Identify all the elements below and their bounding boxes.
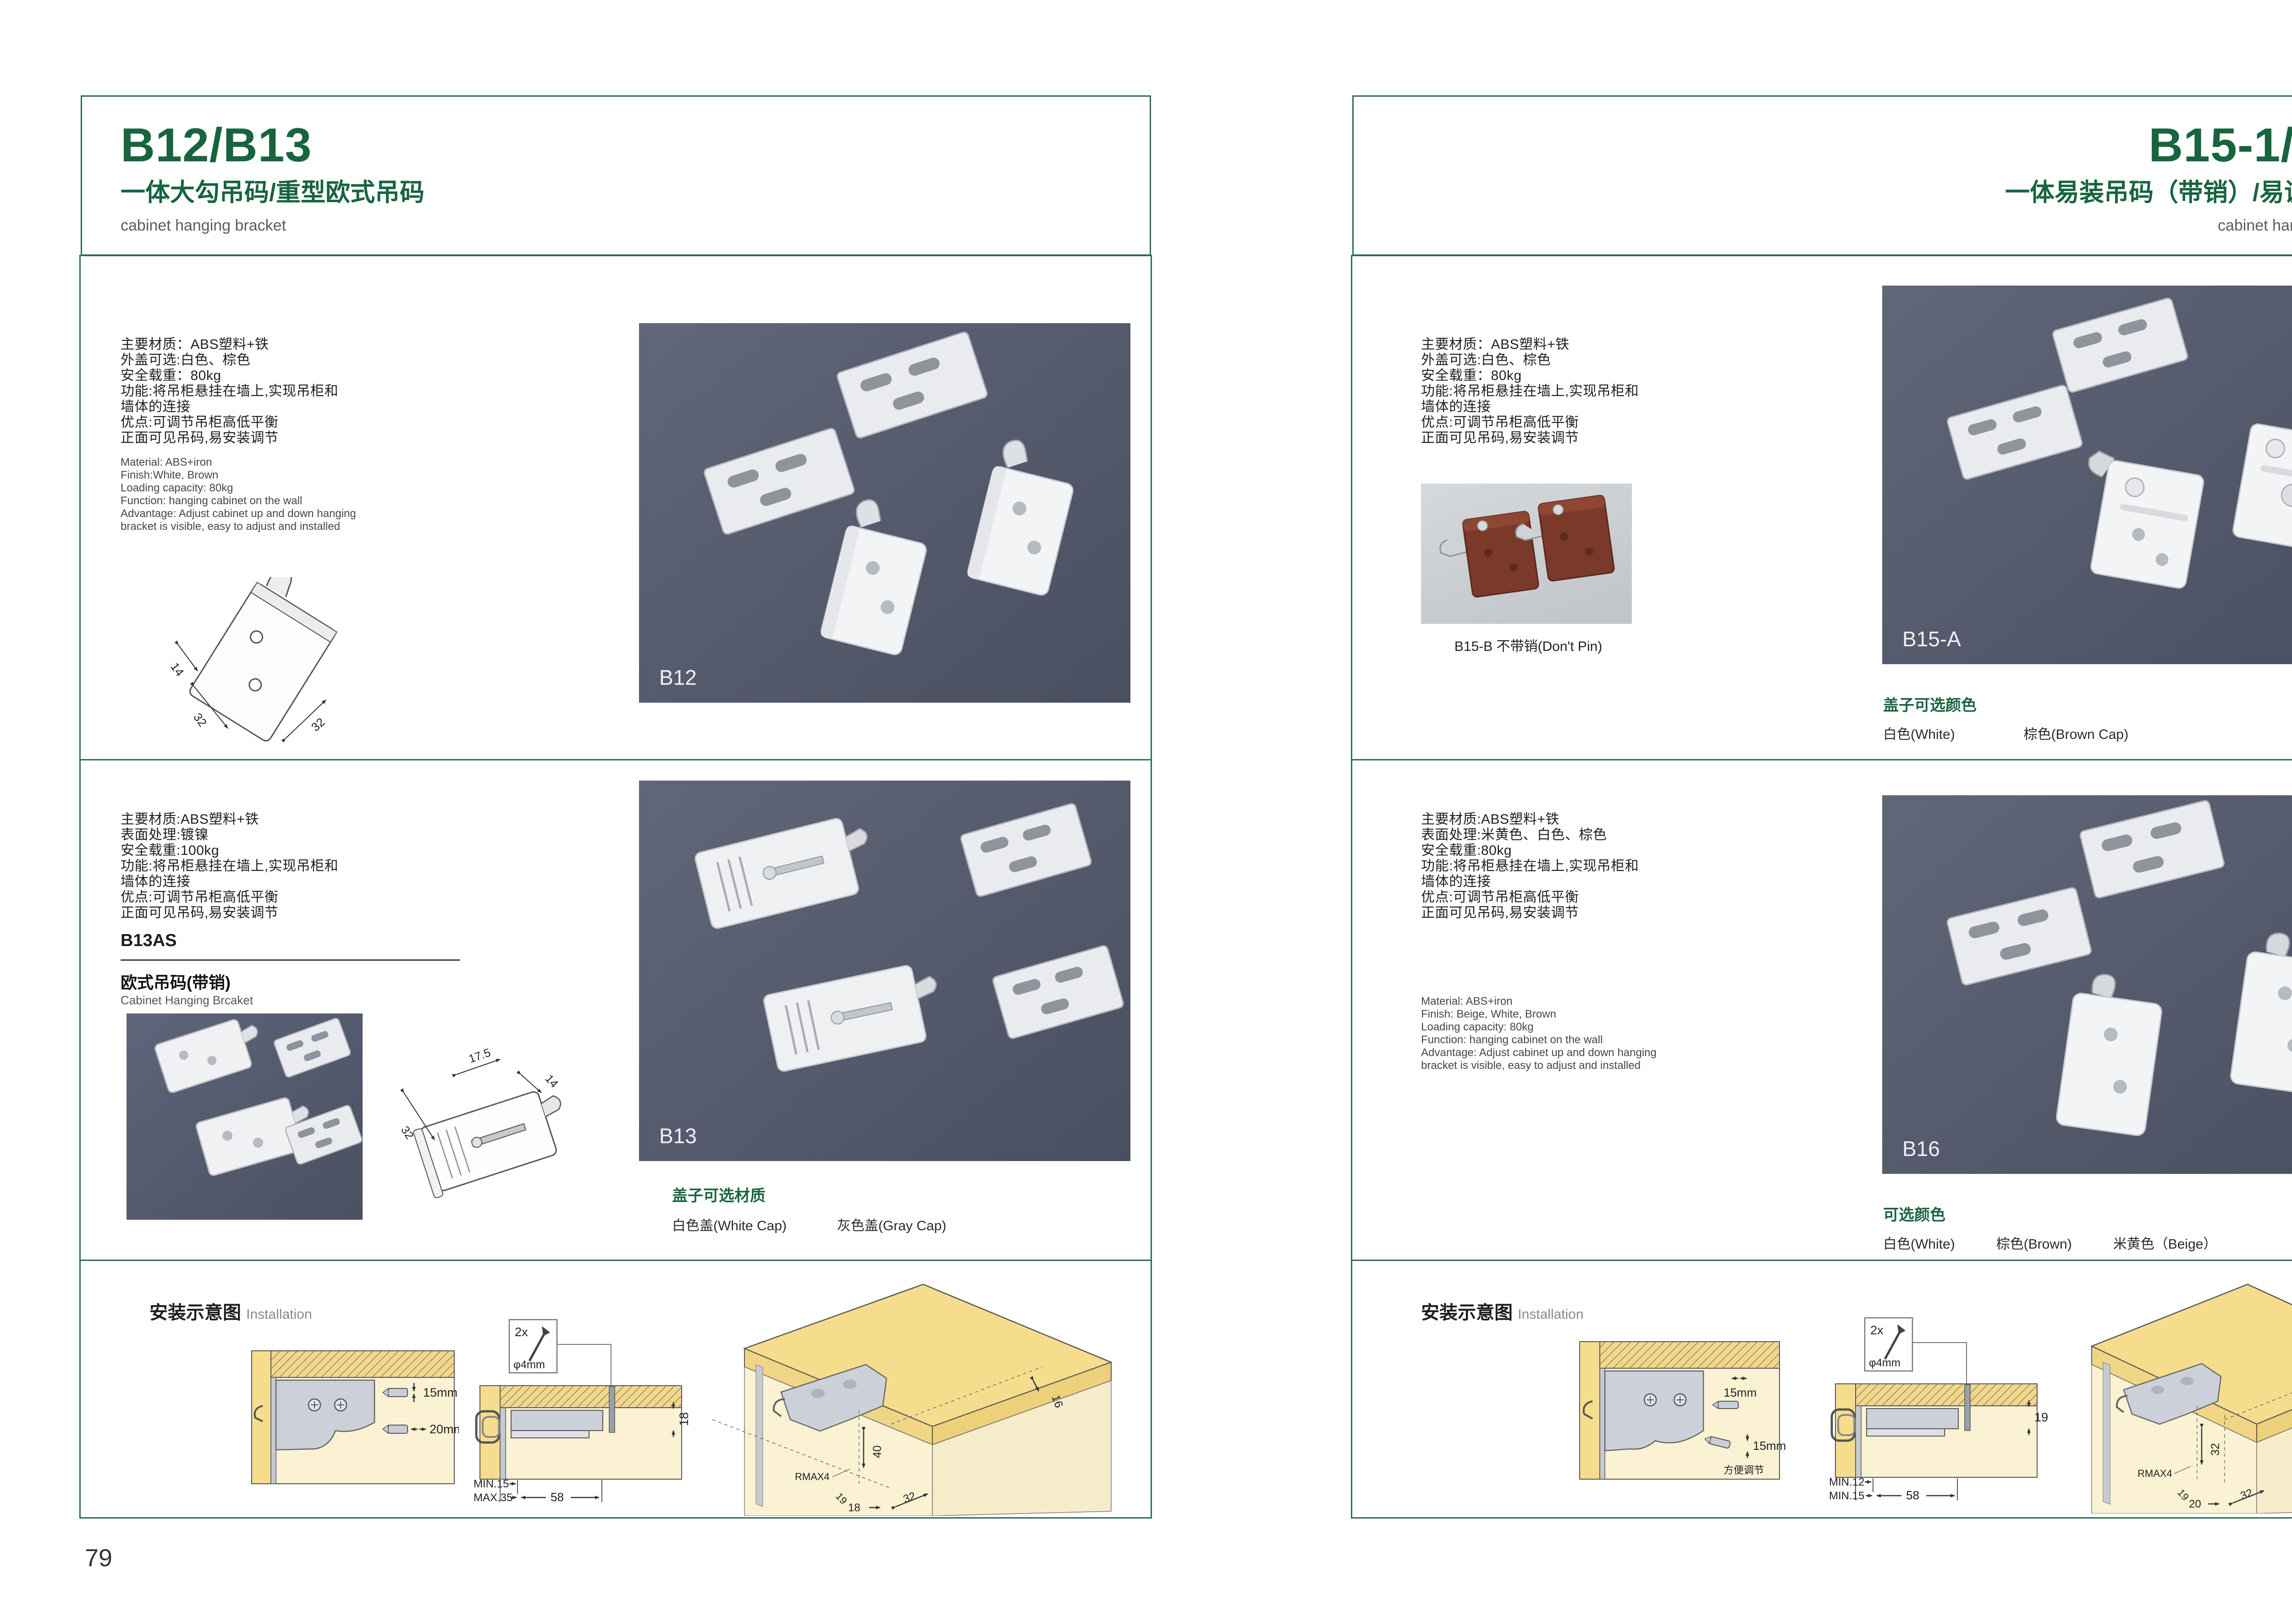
bracket-icon xyxy=(154,1014,268,1094)
section-divider xyxy=(81,759,1151,760)
svg-text:18: 18 xyxy=(677,1412,689,1426)
bracket-icon xyxy=(967,436,1082,596)
install-diagram-3d-left: 16 40 RMAX4 19 18 32 xyxy=(712,1268,1116,1516)
svg-text:φ4mm: φ4mm xyxy=(513,1359,545,1371)
svg-text:2x: 2x xyxy=(515,1325,528,1339)
hook-icon xyxy=(2265,931,2291,956)
bracket-icon xyxy=(2055,970,2165,1136)
cap-option: 灰色盖(Gray Cap) xyxy=(837,1214,946,1234)
cap-option: 白色(White) xyxy=(1883,1233,1955,1253)
b13-dimension-drawing: 32 17.5 14 xyxy=(383,1031,599,1228)
left-page-header: B12/B13 一体大勾吊码/重型欧式吊码 cabinet hanging br… xyxy=(81,95,1151,256)
wall-plate-icon xyxy=(273,1018,351,1078)
color-options-title: 可选颜色 xyxy=(1883,1202,1945,1225)
b13-specs-cn: 主要材质:ABS塑料+铁 表面处理:镀镍 安全载重:100kg 功能:将吊柜悬挂… xyxy=(121,812,338,921)
svg-text:MIN.12: MIN.12 xyxy=(1829,1476,1864,1488)
wall-plate-icon xyxy=(836,331,988,439)
b16-product-photo: B16 xyxy=(1882,795,2292,1174)
svg-text:2x: 2x xyxy=(1870,1323,1884,1337)
b12-specs-en: Material: ABS+iron Finish:White, Brown L… xyxy=(121,456,356,533)
install-diagram-screw-right: 2x φ4mm 19 MIN.12 MIN.15 58 xyxy=(1829,1315,2049,1508)
b15b-thumb-caption: B15-B 不带销(Don't Pin) xyxy=(1400,635,1657,655)
b12-photo-art xyxy=(639,323,1130,703)
bracket-icon xyxy=(694,812,880,930)
install-diagram-3d-right: 30 32 RMAX4 19 20 32 xyxy=(2064,1268,2292,1514)
section-divider xyxy=(1352,1260,2292,1261)
photo-label: B16 xyxy=(1902,1136,1940,1161)
color-options: 白色(White) 棕色(Brown) 米黄色（Beige） xyxy=(1883,1233,2217,1253)
bracket-icon xyxy=(820,496,935,656)
right-page-header: B15-1/B16 一体易装吊码（带销）/易调节吊码 cabinet hangi… xyxy=(1352,95,2292,256)
cap-color-title: 盖子可选颜色 xyxy=(1883,693,1977,715)
section-divider xyxy=(81,1260,1151,1261)
svg-text:RMAX4: RMAX4 xyxy=(2138,1468,2172,1479)
svg-text:14: 14 xyxy=(168,660,187,679)
svg-text:32: 32 xyxy=(2209,1443,2222,1456)
page-title: B12/B13 xyxy=(121,121,312,169)
hook-icon xyxy=(2091,973,2116,997)
svg-text:32: 32 xyxy=(309,715,328,734)
b12-dimension-drawing: 14 32 32 xyxy=(124,577,381,756)
wall-plate-icon xyxy=(2079,800,2225,899)
b16-specs-cn: 主要材质:ABS塑料+铁 表面处理:米黄色、白色、棕色 安全载重:80kg 功能… xyxy=(1421,812,1639,921)
b12-product-photo: B12 xyxy=(639,323,1130,703)
b15b-thumb-photo xyxy=(1421,484,1632,624)
page-tagline: cabinet hanging bracket xyxy=(2218,217,2292,235)
svg-text:20mm: 20mm xyxy=(430,1422,459,1436)
svg-text:MIN.15: MIN.15 xyxy=(474,1478,509,1490)
svg-text:20: 20 xyxy=(2189,1498,2201,1510)
install-diagram-section-left: 15mm 20mm xyxy=(243,1337,459,1488)
wall-plate-icon xyxy=(2052,297,2188,393)
page-title: B15-1/B16 xyxy=(2149,121,2292,169)
svg-text:18: 18 xyxy=(848,1502,860,1514)
hook-icon xyxy=(1439,538,1467,558)
bracket-icon xyxy=(2232,423,2292,553)
installation-title-en: Installation xyxy=(246,1307,312,1322)
page-number-left: 79 xyxy=(85,1544,112,1572)
install-diagram-screw-left: 2x φ4mm 18 MIN.15 MAX.35 58 xyxy=(474,1317,689,1509)
right-page-content: 主要材质：ABS塑料+铁 外盖可选:白色、棕色 安全载重：80kg 功能:将吊柜… xyxy=(1351,255,2292,1519)
screw-icon xyxy=(609,1387,615,1432)
wall-plate-icon xyxy=(1946,385,2083,480)
cap-option: 棕色(Brown Cap) xyxy=(2024,723,2128,743)
svg-text:φ4mm: φ4mm xyxy=(1869,1357,1901,1369)
svg-text:14: 14 xyxy=(543,1072,561,1090)
svg-text:15mm: 15mm xyxy=(1753,1439,1786,1453)
bracket-icon xyxy=(763,960,948,1072)
cap-option: 棕色(Brown) xyxy=(1996,1233,2072,1253)
b15-specs-cn: 主要材质：ABS塑料+铁 外盖可选:白色、棕色 安全载重：80kg 功能:将吊柜… xyxy=(1421,337,1639,446)
wall-plate-icon xyxy=(703,427,855,535)
section-divider xyxy=(1352,759,2292,760)
photo-label: B12 xyxy=(659,665,697,690)
svg-text:17.5: 17.5 xyxy=(467,1046,492,1065)
cap-color-options: 白色(White) 棕色(Brown Cap) xyxy=(1883,723,2128,743)
b13-product-photo: B13 xyxy=(639,781,1130,1161)
svg-text:MAX.35: MAX.35 xyxy=(474,1492,512,1504)
svg-text:32: 32 xyxy=(191,710,209,729)
catalog-spread: { "colors":{"accent":"#17643f","border":… xyxy=(0,0,2292,1624)
svg-text:58: 58 xyxy=(551,1490,564,1504)
page-subtitle: 一体易装吊码（带销）/易调节吊码 xyxy=(2005,179,2292,206)
model-name-en: Cabinet Hanging Brcaket xyxy=(121,993,253,1007)
cap-material-title: 盖子可选材质 xyxy=(672,1183,766,1206)
svg-text:58: 58 xyxy=(1906,1488,1919,1502)
screw-icon xyxy=(1965,1385,1970,1431)
photo-label: B15-A xyxy=(1902,627,1961,651)
wall-plate-icon xyxy=(992,945,1124,1039)
bracket-icon xyxy=(2230,929,2292,1095)
b13as-thumb-photo xyxy=(127,1013,363,1220)
installation-title: 安装示意图 Installation xyxy=(149,1298,312,1324)
cap-option: 白色(White) xyxy=(1883,723,1955,743)
wall-plate-icon xyxy=(960,803,1092,897)
install-diagram-section-right: 15mm 15mm 方便调节 xyxy=(1572,1324,1788,1496)
b13as-thumb-art xyxy=(127,1013,363,1220)
b13-photo-art xyxy=(639,781,1130,1161)
b16-specs-en: Material: ABS+iron Finish: Beige, White,… xyxy=(1421,995,1657,1072)
svg-text:15mm: 15mm xyxy=(423,1386,457,1399)
svg-text:RMAX4: RMAX4 xyxy=(795,1471,830,1482)
svg-text:19: 19 xyxy=(2034,1410,2048,1424)
b15a-photo-art xyxy=(1882,286,2292,664)
svg-text:15mm: 15mm xyxy=(1724,1386,1757,1399)
model-underline xyxy=(121,959,460,961)
photo-label: B13 xyxy=(659,1123,697,1148)
svg-text:32: 32 xyxy=(398,1124,416,1142)
wall-plate-icon xyxy=(1946,887,2092,986)
b12-specs-cn: 主要材质：ABS塑料+铁 外盖可选:白色、棕色 安全载重：80kg 功能:将吊柜… xyxy=(121,337,338,446)
model-code: B13AS xyxy=(121,931,177,951)
b15b-thumb-art xyxy=(1421,484,1632,624)
b16-photo-art xyxy=(1882,795,2292,1174)
svg-text:方便调节: 方便调节 xyxy=(1724,1464,1764,1476)
cap-option: 白色盖(White Cap) xyxy=(672,1214,787,1234)
svg-text:MIN.15: MIN.15 xyxy=(1829,1490,1864,1502)
model-name-cn: 欧式吊码(带销) xyxy=(121,969,231,993)
bracket-silhouette xyxy=(1605,1371,1703,1451)
bracket-icon xyxy=(2070,450,2205,589)
cap-material-options: 白色盖(White Cap) 灰色盖(Gray Cap) xyxy=(672,1214,946,1234)
page-subtitle: 一体大勾吊码/重型欧式吊码 xyxy=(121,179,424,206)
installation-title: 安装示意图 Installation xyxy=(1421,1298,1584,1324)
cap-option: 米黄色（Beige） xyxy=(2113,1233,2217,1253)
left-page-content: 主要材质：ABS塑料+铁 外盖可选:白色、棕色 安全载重：80kg 功能:将吊柜… xyxy=(79,255,1152,1519)
svg-text:40: 40 xyxy=(871,1445,884,1458)
installation-title-en: Installation xyxy=(1518,1307,1583,1322)
page-tagline: cabinet hanging bracket xyxy=(121,217,286,235)
b15a-product-photo: B15-A xyxy=(1882,286,2292,664)
